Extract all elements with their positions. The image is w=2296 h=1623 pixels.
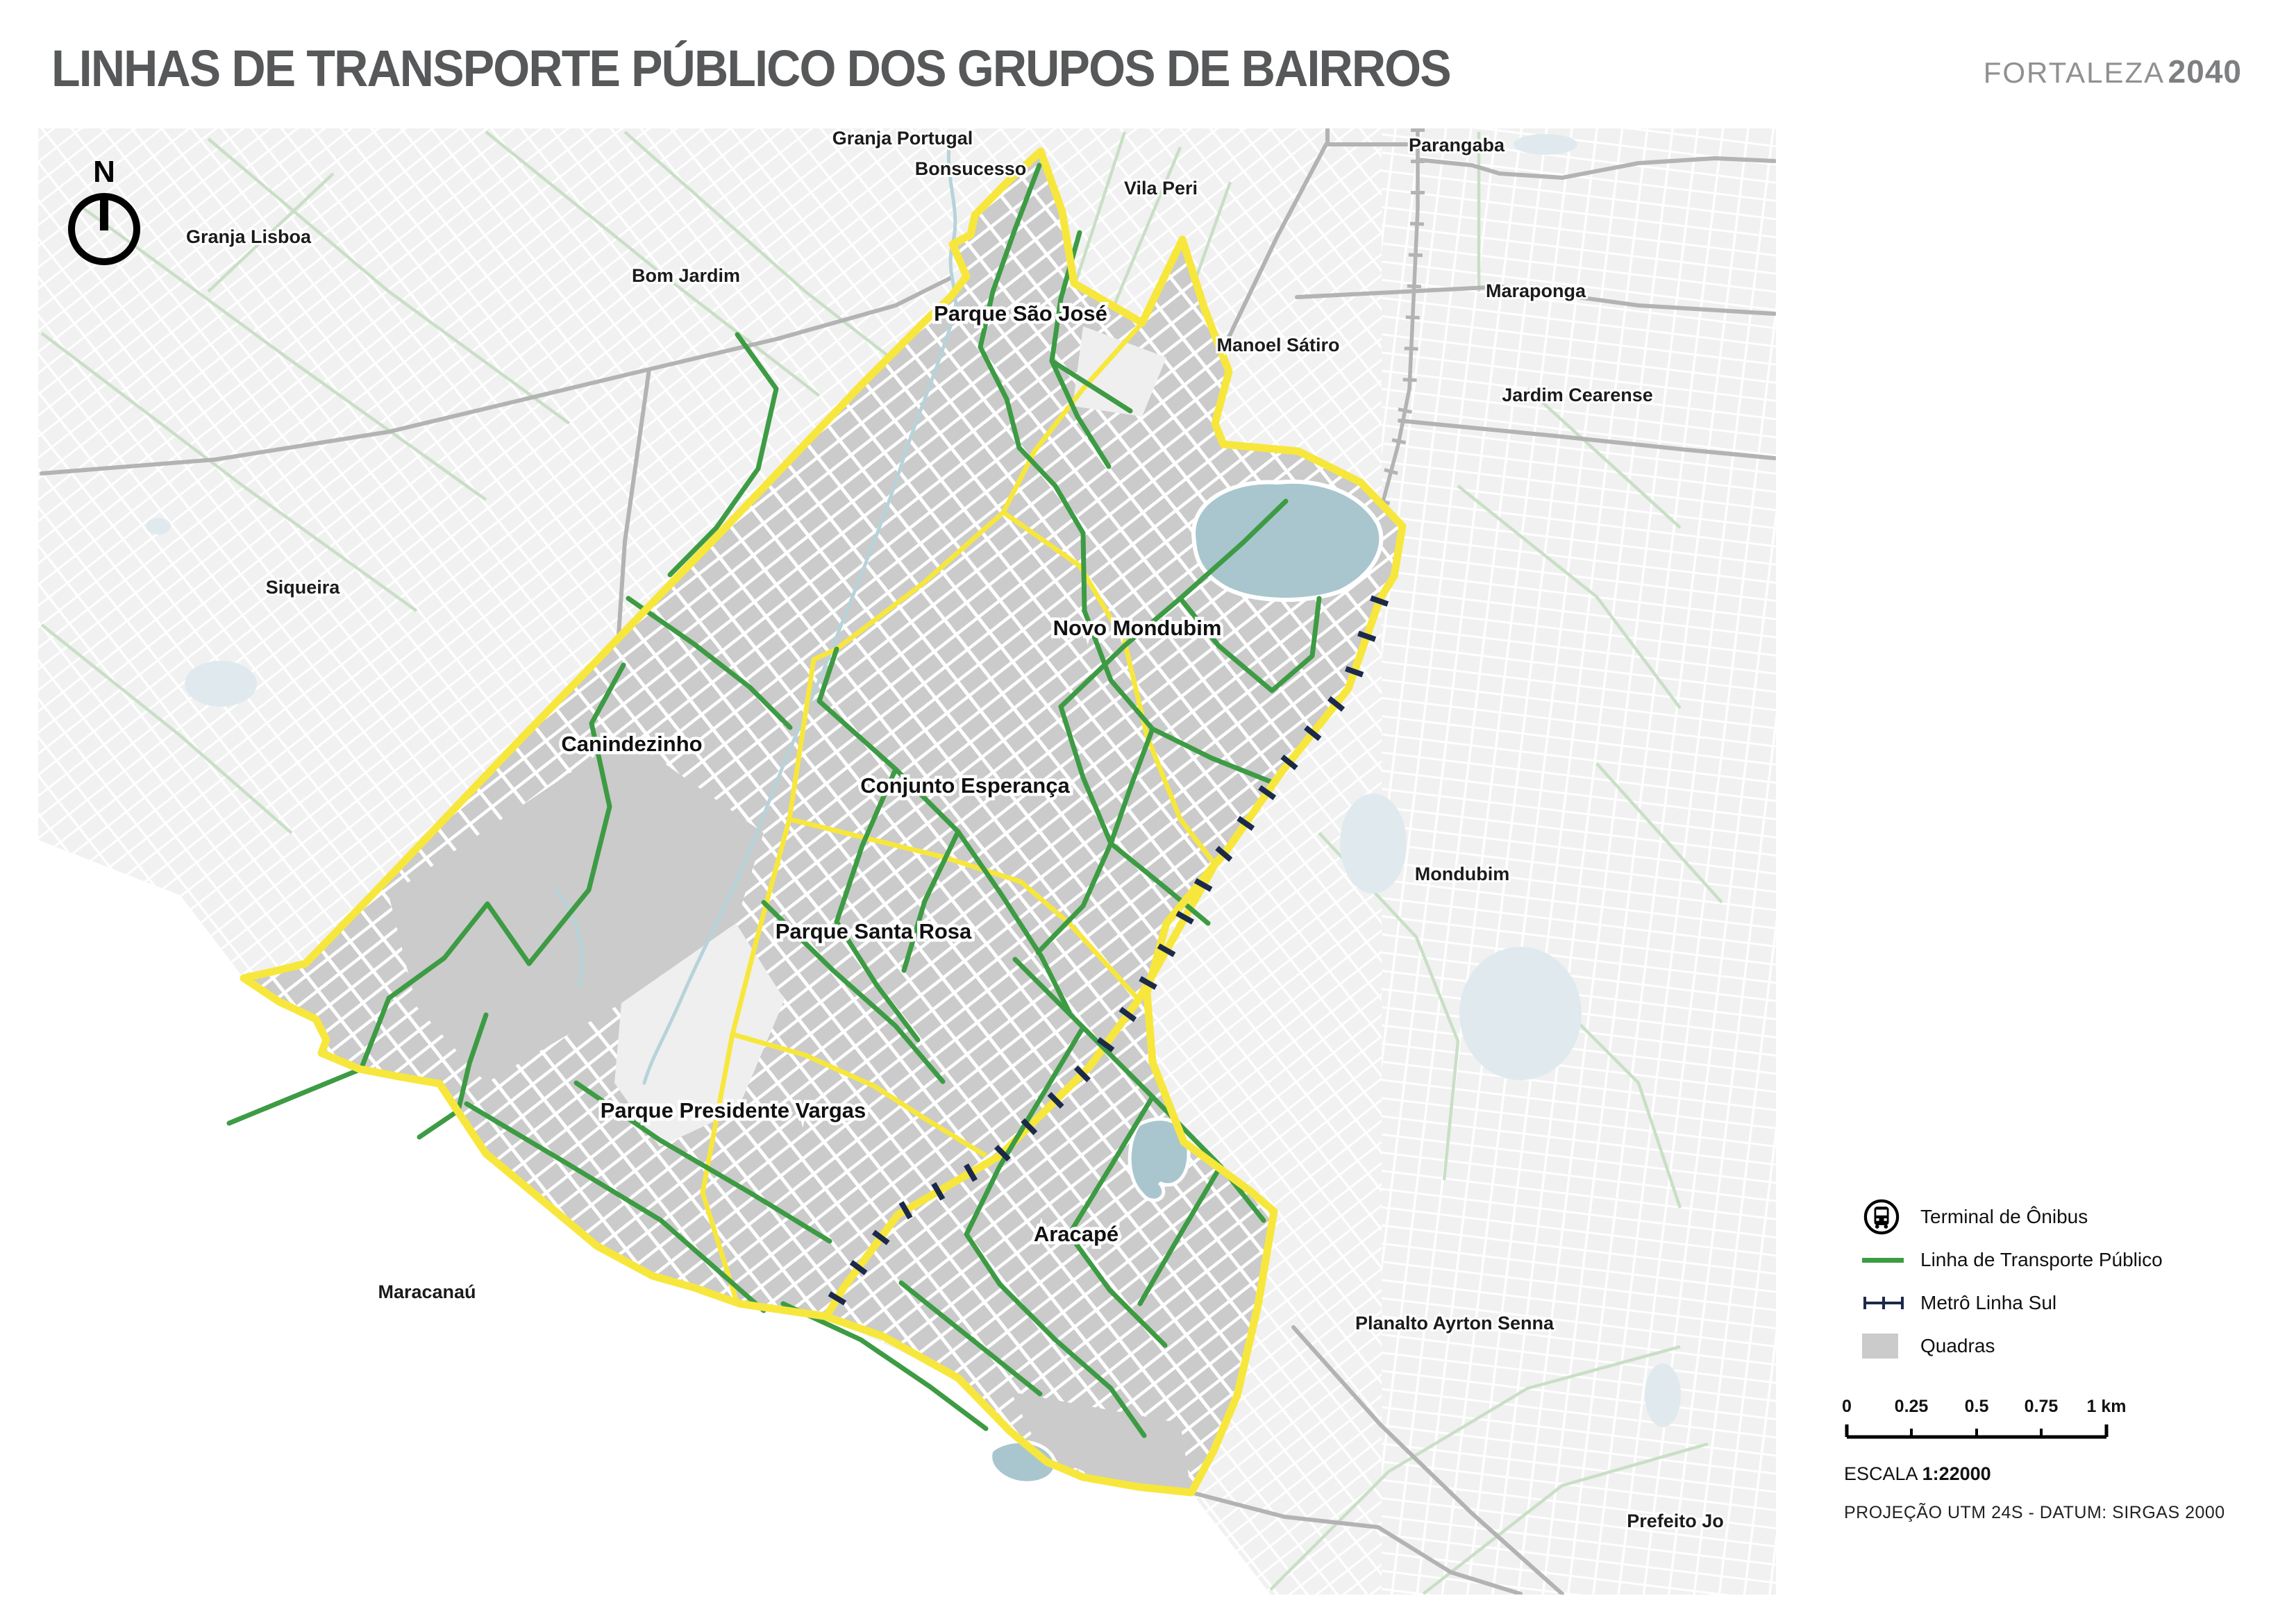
compass-north-label: N [93, 155, 115, 189]
legend-row-quadras: Quadras [1862, 1325, 2163, 1368]
map-label: Granja Lisboa [186, 226, 312, 247]
map-label: Prefeito Jo [1627, 1511, 1724, 1531]
map-label: Parque Santa Rosa [776, 919, 972, 943]
legend-label-quadras: Quadras [1920, 1335, 1995, 1357]
legend-label-terminal: Terminal de Ônibus [1920, 1206, 2088, 1228]
map-label: Manoel Sátiro [1216, 335, 1339, 355]
map-legend: Terminal de Ônibus Linha de Transporte P… [1862, 1195, 2163, 1368]
scale-value: 1:22000 [1922, 1463, 1991, 1484]
metro-line-icon [1862, 1295, 1911, 1311]
scale-bar-ruler [1843, 1420, 2120, 1441]
map-label: Parque Presidente Vargas [601, 1098, 866, 1122]
map-label: Vila Peri [1124, 178, 1198, 199]
map-label: Granja Portugal [832, 128, 973, 149]
scale-bar: 0 0.25 0.5 0.75 1 km [1843, 1397, 2134, 1445]
quadras-swatch-icon [1862, 1334, 1911, 1359]
scale-bar-tick-labels: 0 0.25 0.5 0.75 1 km [1843, 1397, 2134, 1420]
map-label: Siqueira [266, 577, 341, 598]
map-label: Parque São José [934, 301, 1107, 326]
projection-text: PROJEÇÃO UTM 24S - DATUM: SIRGAS 2000 [1844, 1503, 2225, 1523]
legend-label-metro: Metrô Linha Sul [1920, 1292, 2056, 1314]
scale-tick-1km: 1 km [2087, 1397, 2127, 1417]
legend-row-metro: Metrô Linha Sul [1862, 1281, 2163, 1325]
legend-row-transport-line: Linha de Transporte Público [1862, 1238, 2163, 1281]
map-label: Parangaba [1409, 135, 1505, 155]
map-label: Canindezinho [561, 732, 702, 756]
legend-label-transport-line: Linha de Transporte Público [1920, 1249, 2163, 1271]
scale-text: ESCALA 1:22000 [1844, 1463, 1991, 1485]
city-map-canvas: N Granja PortugalBonsucessoVila PeriPara… [0, 0, 2296, 1623]
legend-row-terminal: Terminal de Ônibus [1862, 1195, 2163, 1238]
map-label: Bonsucesso [915, 158, 1027, 179]
map-label: Planalto Ayrton Senna [1355, 1313, 1555, 1334]
scale-tick-075: 0.75 [2025, 1397, 2059, 1417]
scale-tick-05: 0.5 [1965, 1397, 1989, 1417]
scale-label: ESCALA [1844, 1463, 1917, 1484]
map-label: Maraponga [1486, 280, 1586, 301]
map-label: Bom Jardim [632, 265, 740, 286]
map-label: Jardim Cearense [1502, 385, 1653, 405]
map-label: Mondubim [1415, 864, 1509, 884]
map-label: Maracanaú [378, 1281, 476, 1302]
scale-tick-025: 0.25 [1895, 1397, 1929, 1417]
bus-terminal-icon [1862, 1197, 1911, 1236]
map-label: Conjunto Esperança [860, 773, 1070, 798]
map-label: Aracapé [1034, 1222, 1118, 1246]
poster-page: LINHAS DE TRANSPORTE PÚBLICO DOS GRUPOS … [0, 0, 2296, 1623]
transport-line-icon [1862, 1258, 1911, 1263]
scale-tick-0: 0 [1842, 1397, 1852, 1417]
map-label: Novo Mondubim [1053, 616, 1222, 640]
